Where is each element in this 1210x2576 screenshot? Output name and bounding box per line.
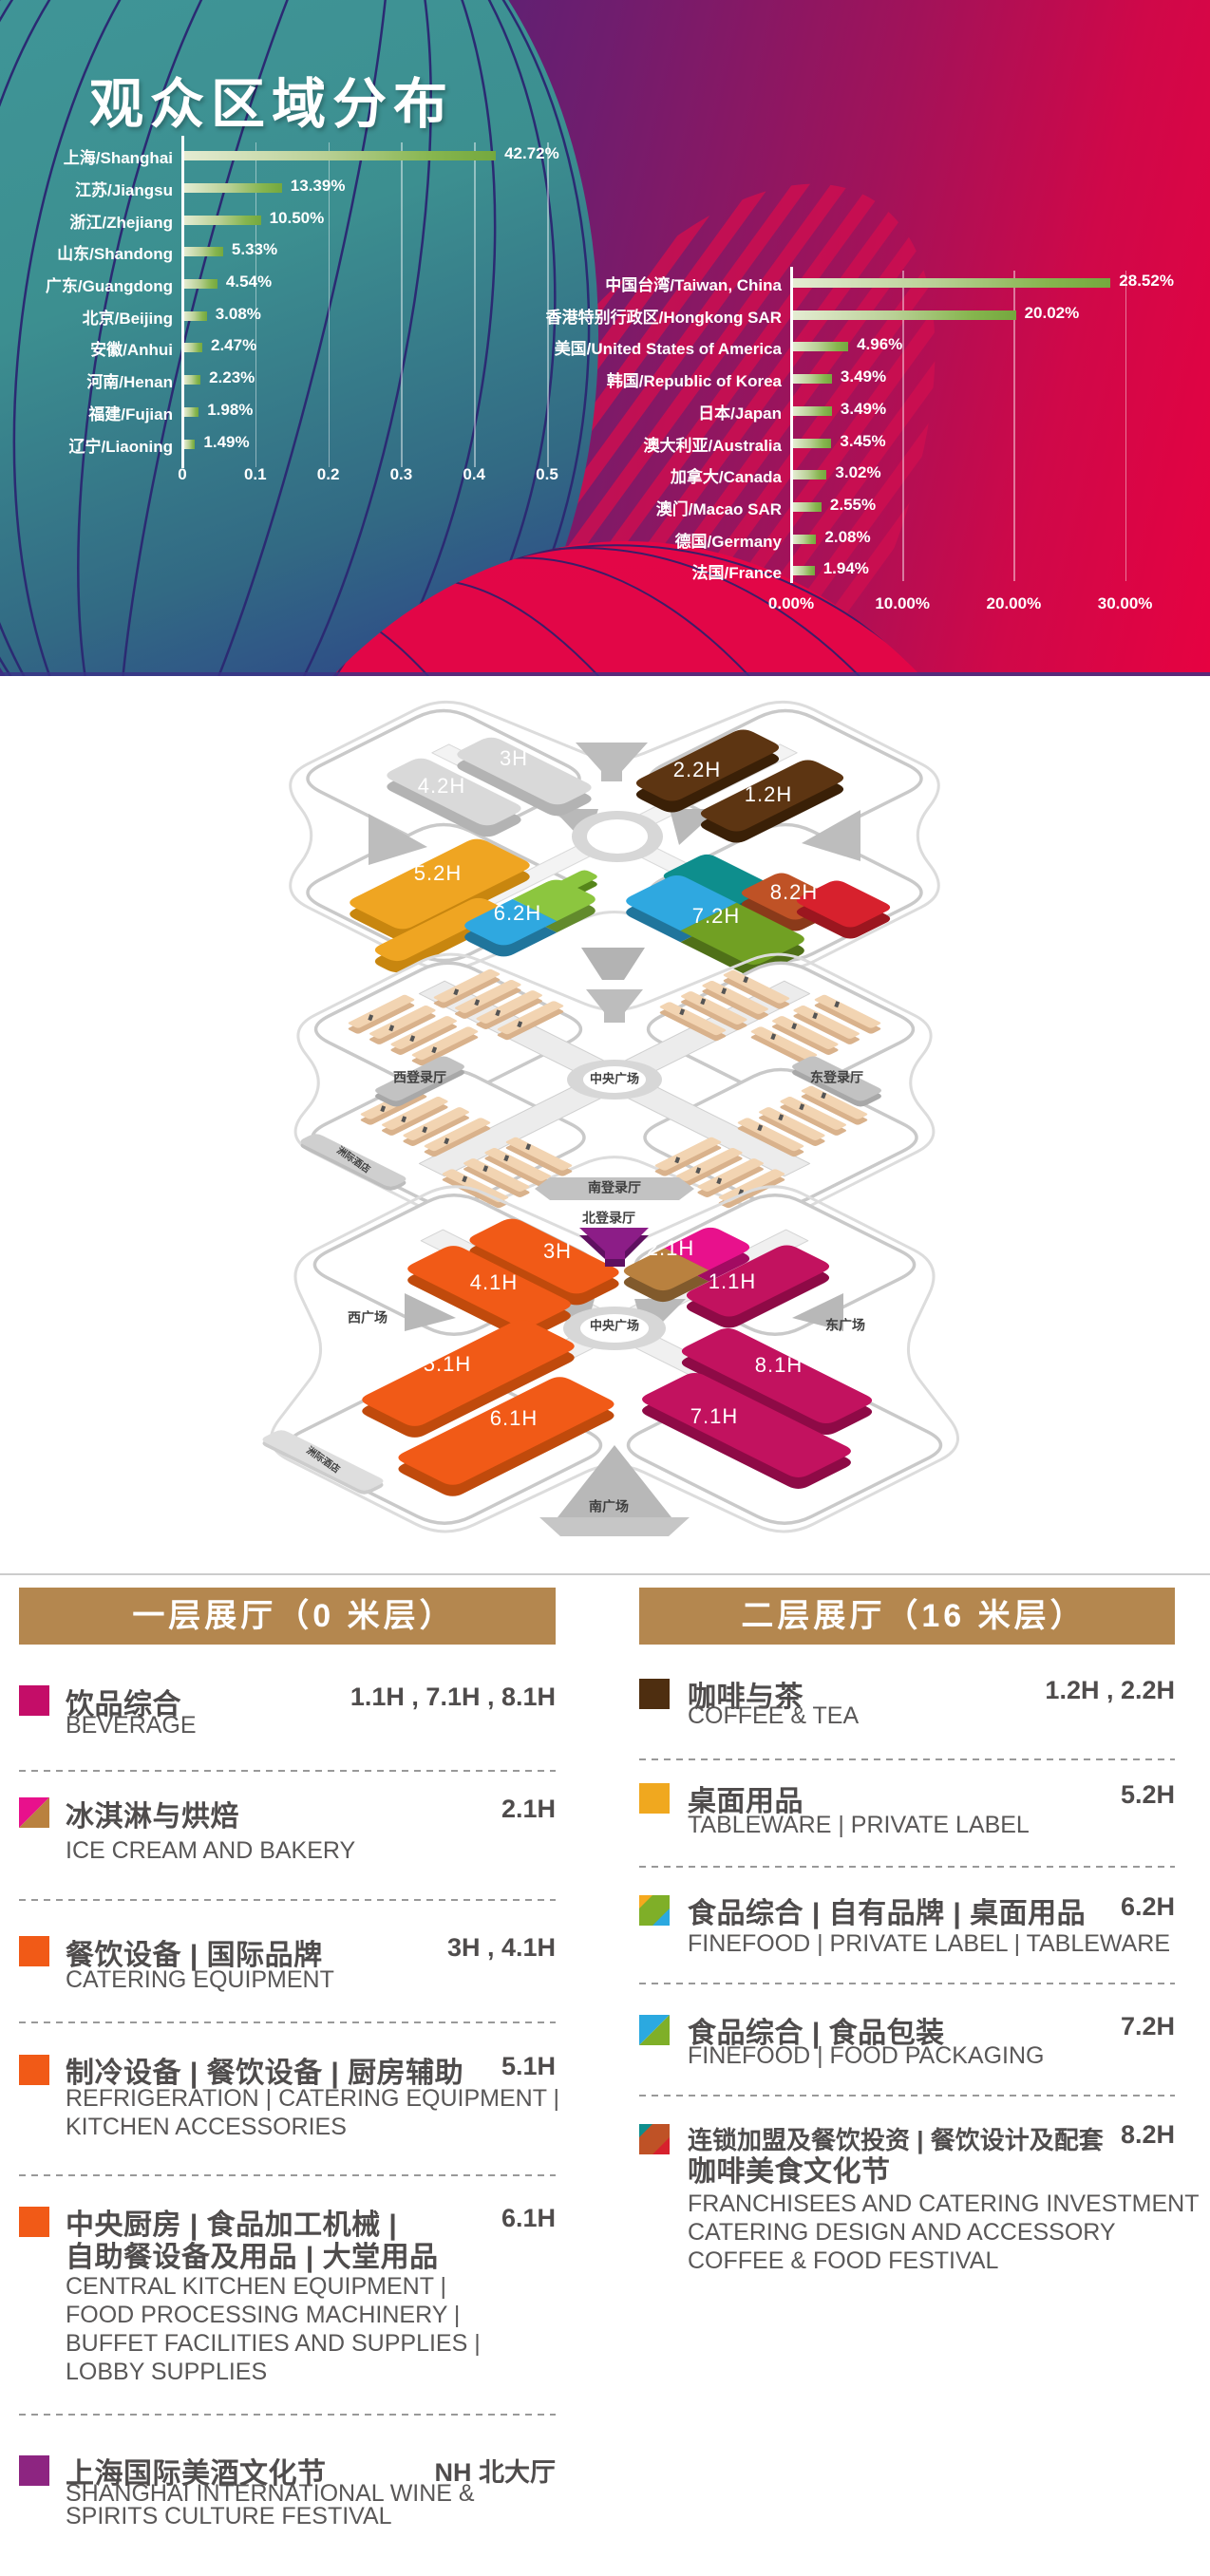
svg-text:西广场: 西广场	[348, 1310, 388, 1326]
svg-text:1.2H: 1.2H	[745, 782, 792, 806]
svg-text:3H: 3H	[543, 1239, 572, 1263]
svg-text:2.2H: 2.2H	[673, 758, 721, 781]
svg-text:南登录厅: 南登录厅	[588, 1180, 641, 1195]
svg-text:2.1H: 2.1H	[647, 1236, 694, 1260]
svg-text:3H: 3H	[500, 746, 528, 770]
svg-text:1.1H: 1.1H	[709, 1269, 756, 1293]
svg-text:8.1H: 8.1H	[755, 1353, 803, 1377]
svg-text:6.1H: 6.1H	[490, 1406, 538, 1430]
svg-text:7.2H: 7.2H	[692, 904, 740, 928]
svg-text:7.1H: 7.1H	[690, 1404, 738, 1428]
svg-text:6.2H: 6.2H	[494, 901, 541, 925]
svg-text:4.2H: 4.2H	[418, 774, 465, 798]
svg-text:北登录厅: 北登录厅	[582, 1211, 635, 1226]
svg-text:东广场: 东广场	[825, 1318, 865, 1333]
svg-text:中央广场: 中央广场	[590, 1071, 639, 1085]
svg-text:东登录厅: 东登录厅	[810, 1070, 863, 1085]
svg-text:4.1H: 4.1H	[470, 1270, 518, 1294]
svg-text:南广场: 南广场	[589, 1499, 629, 1514]
svg-text:西登录厅: 西登录厅	[393, 1070, 446, 1085]
svg-text:5.2H: 5.2H	[414, 861, 462, 885]
svg-text:5.1H: 5.1H	[424, 1352, 471, 1376]
svg-text:中央广场: 中央广场	[590, 1318, 639, 1332]
svg-text:8.2H: 8.2H	[770, 880, 818, 904]
